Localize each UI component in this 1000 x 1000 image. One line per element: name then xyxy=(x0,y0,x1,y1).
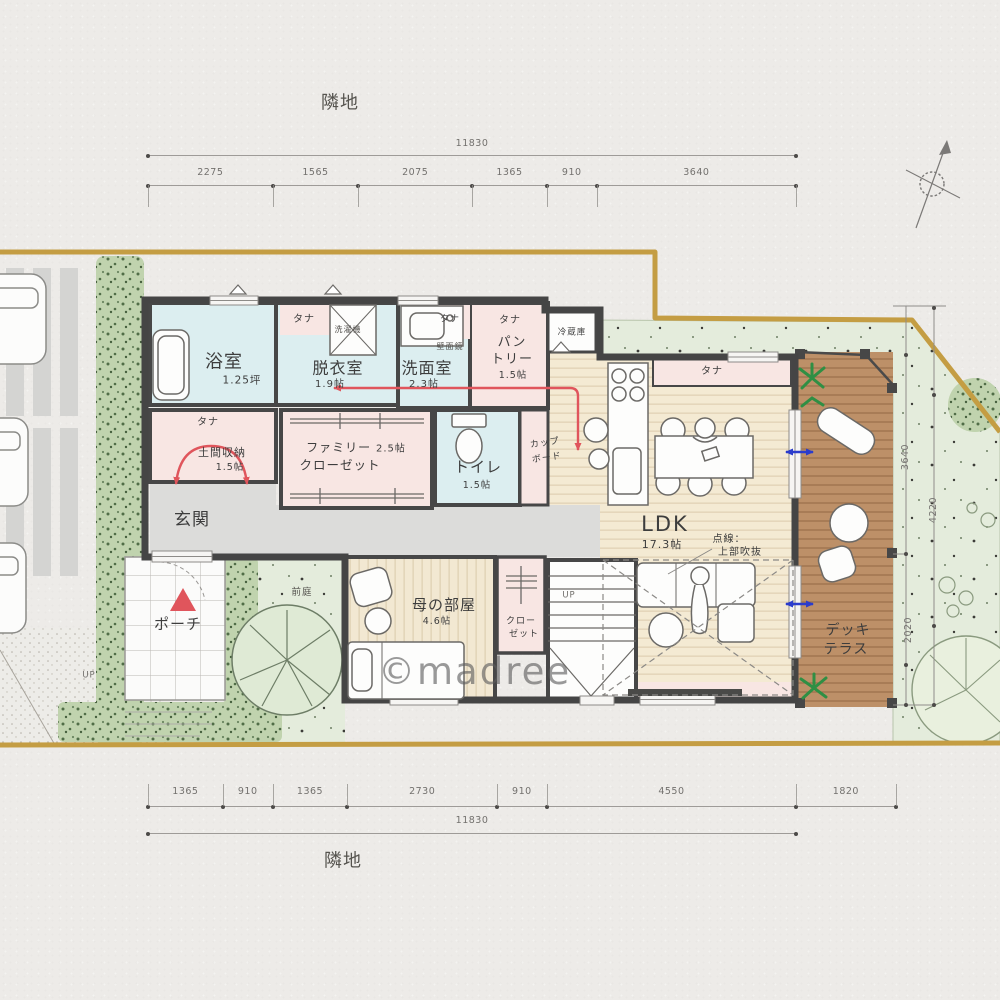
dim-tick xyxy=(794,154,798,158)
dim-witness xyxy=(796,784,797,806)
dim-witness xyxy=(273,185,274,207)
floor-plan-canvas: 隣地 隣地 浴室 1.25坪 脱衣室 1.9帖 洗面室 2.3帖 パン トリー … xyxy=(0,0,1000,1000)
mother-closet-label-2: ゼット xyxy=(509,630,539,639)
room-label-porch: ポーチ xyxy=(154,617,202,633)
dim-witness xyxy=(273,784,274,806)
void-note-1: 点線： xyxy=(713,535,746,546)
dim-witness xyxy=(497,784,498,806)
dim-witness xyxy=(547,784,548,806)
right-dim-lower: 2020 xyxy=(904,617,914,643)
room-label-entrance: 玄関 xyxy=(174,512,210,530)
room-label-toilet: トイレ xyxy=(454,460,502,476)
room-label-family-closet-2: クローゼット xyxy=(299,458,380,471)
room-area-bath: 1.25坪 xyxy=(223,375,262,386)
dim-label: 910 xyxy=(512,787,532,797)
front-garden-label: 前庭 xyxy=(291,588,312,598)
dim-witness xyxy=(597,185,598,207)
watermark: ©madree xyxy=(378,650,571,693)
dim-witness xyxy=(347,784,348,806)
dim-label: 2275 xyxy=(197,168,223,178)
dim-label: 910 xyxy=(562,168,582,178)
room-label-washroom: 洗面室 xyxy=(401,361,452,378)
corridor-floor xyxy=(276,505,600,557)
dim-witness xyxy=(796,185,797,207)
dim-seg-line xyxy=(148,806,896,807)
genkan-floor xyxy=(150,482,276,557)
washroom-sink xyxy=(401,306,463,346)
room-area-washroom: 2.3帖 xyxy=(409,380,439,391)
dim-witness xyxy=(148,784,149,806)
dim-label: 1820 xyxy=(833,787,859,797)
tana-label-washroom: タナ xyxy=(440,315,460,324)
room-label-pantry-2: トリー xyxy=(491,353,533,367)
room-label-family-closet-1: ファミリー 2.5帖 xyxy=(306,441,406,455)
room-area-dressing: 1.9帖 xyxy=(315,380,345,391)
dim-witness xyxy=(358,185,359,207)
dim-witness xyxy=(223,784,224,806)
tana-label-dining: タナ xyxy=(701,367,723,378)
dim-label: 1565 xyxy=(302,168,328,178)
mirror-label: 壁面鏡 xyxy=(437,343,464,351)
stairs-up-label: UP xyxy=(562,592,575,601)
dim-tick xyxy=(146,154,150,158)
dim-label: 910 xyxy=(238,787,258,797)
dim-label: 1365 xyxy=(297,787,323,797)
room-label-ldk: LDK xyxy=(641,513,689,535)
room-label-deck-1: デッキ xyxy=(826,624,871,639)
dim-label: 1365 xyxy=(172,787,198,797)
room-area-mother: 4.6帖 xyxy=(423,617,452,627)
fridge-label: 冷蔵庫 xyxy=(558,329,587,338)
room-area-doma: 1.5帖 xyxy=(216,463,245,473)
dim-label: 2730 xyxy=(409,787,435,797)
dim-total-line xyxy=(148,155,796,156)
room-area-pantry: 1.5帖 xyxy=(499,371,528,381)
washer-label: 洗濯機 xyxy=(335,326,362,334)
dim-witness xyxy=(896,784,897,806)
family-closet-name: ファミリー xyxy=(306,440,371,454)
room-label-deck-2: テラス xyxy=(824,643,869,658)
dim-label: 2075 xyxy=(402,168,428,178)
tana-label-doma: タナ xyxy=(197,418,219,429)
bathtub xyxy=(153,330,189,400)
neighbor-label-top: 隣地 xyxy=(321,95,359,114)
person-dining xyxy=(695,418,715,438)
dining-set xyxy=(655,418,753,496)
right-dim-outer: 4220 xyxy=(929,497,939,523)
mother-closet-label-1: クロー xyxy=(506,617,536,626)
family-closet-area: 2.5帖 xyxy=(376,443,406,454)
dim-witness xyxy=(472,185,473,207)
room-label-pantry-1: パン xyxy=(498,336,527,350)
dim-witness xyxy=(148,185,149,207)
right-dim-upper: 3640 xyxy=(901,444,911,470)
mother-table xyxy=(365,608,391,634)
room-area-ldk: 17.3帖 xyxy=(642,539,683,551)
car-2 xyxy=(0,418,28,506)
deck-table xyxy=(830,504,868,542)
front-tree xyxy=(232,605,342,715)
room-area-toilet: 1.5帖 xyxy=(463,481,492,491)
dim-total-line xyxy=(148,833,796,834)
dim-witness xyxy=(547,185,548,207)
room-label-mother: 母の部屋 xyxy=(412,598,476,614)
void-note-2: 上部吹抜 xyxy=(718,548,762,559)
kitchen-stool xyxy=(584,418,608,442)
dim-total-label: 11830 xyxy=(456,139,489,149)
room-label-doma: 土間収納 xyxy=(198,447,246,459)
tana-label-dressing: タナ xyxy=(293,315,315,326)
dim-tick xyxy=(794,832,798,836)
porch-up-label: UP xyxy=(82,672,95,681)
room-label-bath: 浴室 xyxy=(205,354,243,373)
neighbor-label-bottom: 隣地 xyxy=(324,853,362,872)
dim-label: 1365 xyxy=(496,168,522,178)
tana-label-pantry: タナ xyxy=(499,316,521,327)
dim-tick xyxy=(146,832,150,836)
person-living xyxy=(691,567,709,585)
plan-graphics xyxy=(0,0,1000,1000)
dim-label: 3640 xyxy=(683,168,709,178)
dim-total-label: 11830 xyxy=(456,816,489,826)
room-label-dressing: 脱衣室 xyxy=(312,361,363,378)
compass-icon xyxy=(906,140,960,228)
dim-label: 4550 xyxy=(658,787,684,797)
